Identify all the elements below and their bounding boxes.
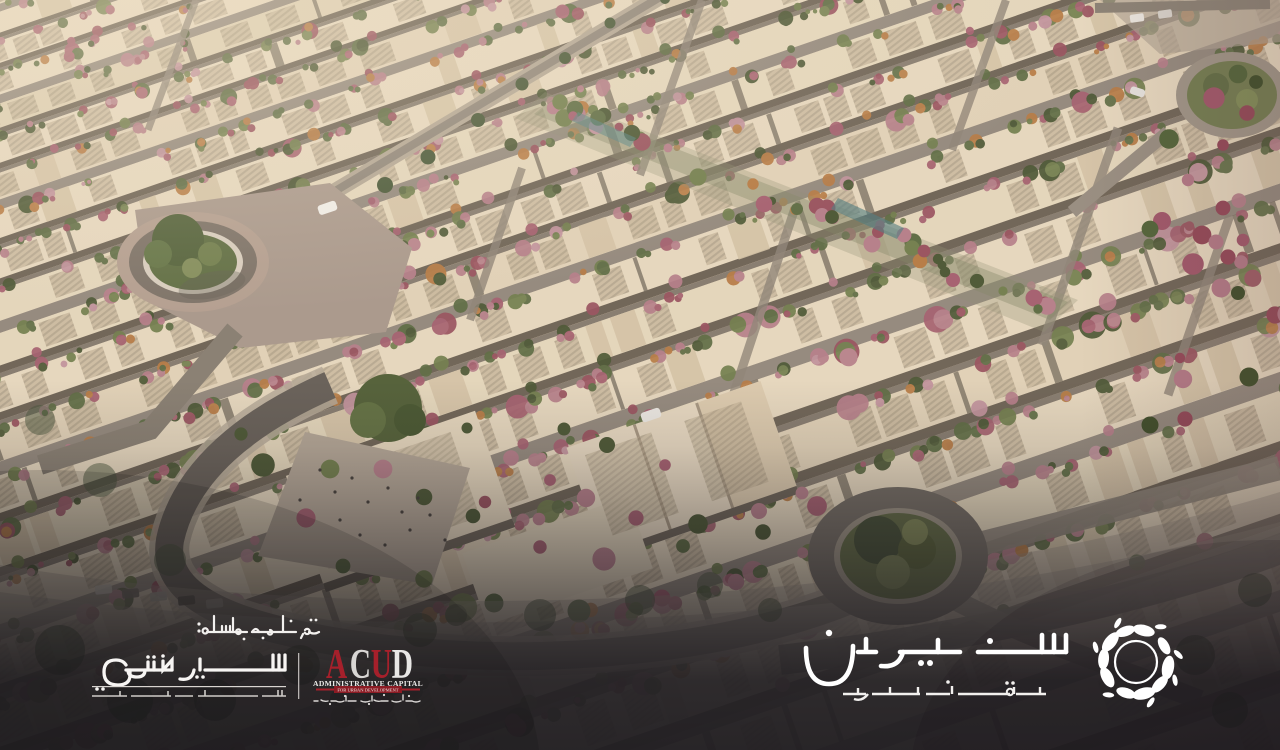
svg-text:FOR URBAN DEVELOPMENT: FOR URBAN DEVELOPMENT [337, 688, 398, 693]
